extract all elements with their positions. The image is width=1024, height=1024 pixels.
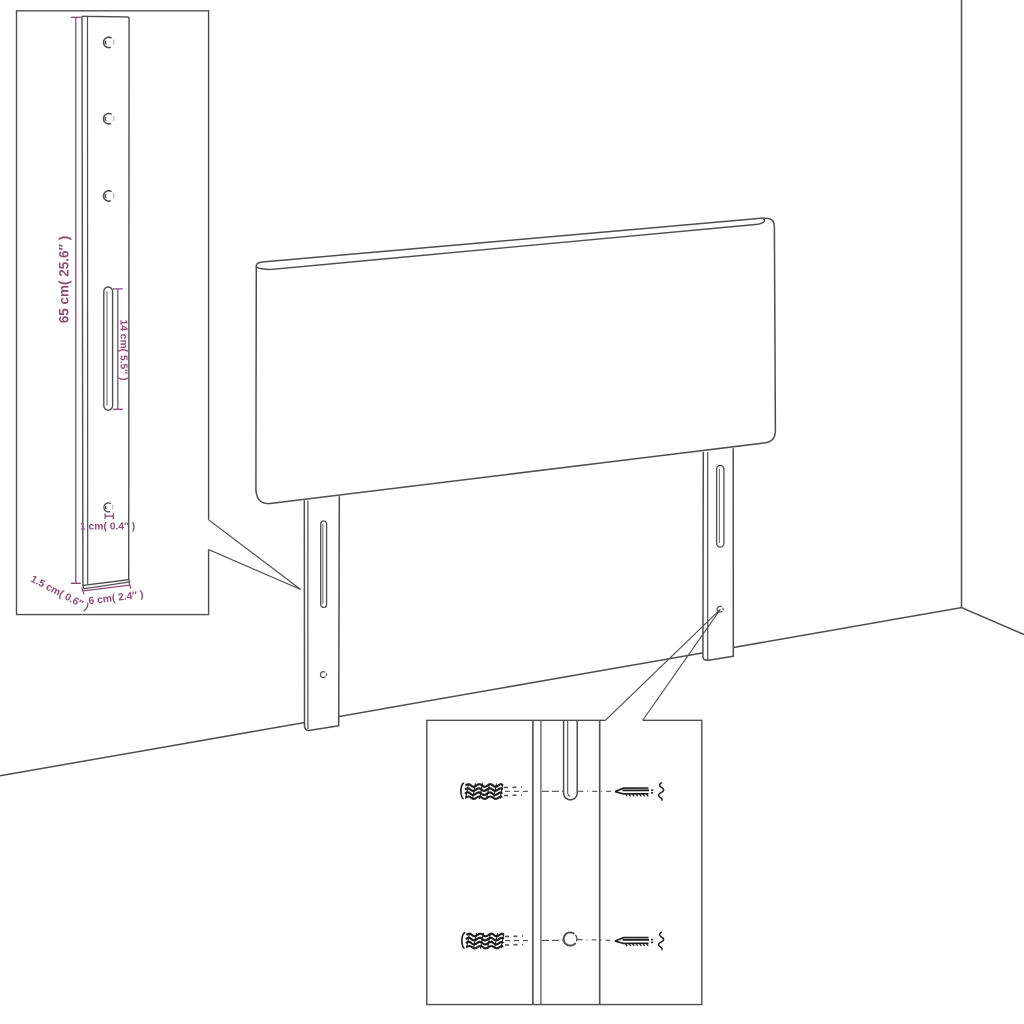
svg-text:14 cm( 5.5″ ): 14 cm( 5.5″ ) xyxy=(117,319,128,380)
svg-text:65 cm( 25.6″ ): 65 cm( 25.6″ ) xyxy=(56,236,71,324)
svg-text:1 cm( 0.4″ ): 1 cm( 0.4″ ) xyxy=(80,522,135,533)
